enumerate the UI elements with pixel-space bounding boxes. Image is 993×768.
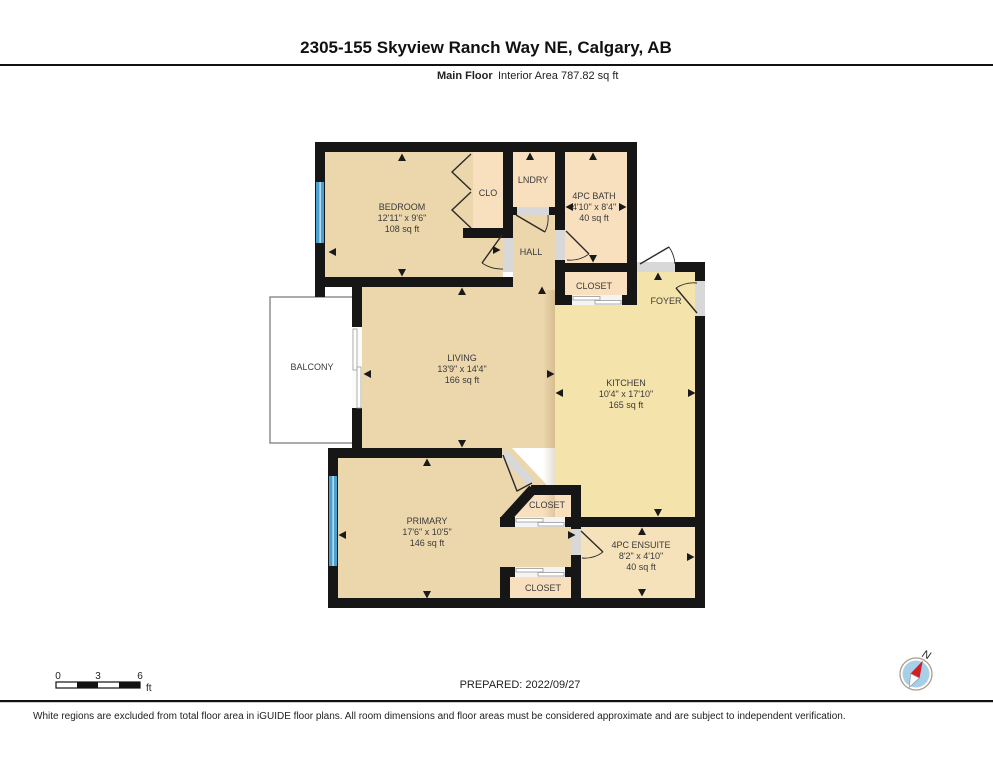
floorplan-page: 2305-155 Skyview Ranch Way NE, Calgary, … (0, 0, 993, 768)
scale-bar: 0 3 6 ft (55, 671, 152, 694)
floorplan-canvas: 2305-155 Skyview Ranch Way NE, Calgary, … (0, 0, 993, 768)
label-kitchen-name: KITCHEN (606, 378, 646, 388)
scale-unit: ft (146, 683, 152, 694)
label-ensuite-name: 4PC ENSUITE (611, 540, 670, 550)
scale-tick-0: 0 (55, 671, 61, 682)
label-foyer: FOYER (650, 296, 682, 306)
header-divider (0, 64, 993, 66)
label-primary-dims: 17'6" x 10'5" (402, 527, 451, 537)
label-hall: HALL (520, 247, 543, 257)
interior-area-label: Interior Area 787.82 sq ft (498, 70, 618, 82)
scale-tick-3: 3 (95, 671, 101, 682)
label-closet-bot: CLOSET (525, 583, 562, 593)
label-kitchen-dims: 10'4" x 17'10" (599, 389, 653, 399)
label-bath-name: 4PC BATH (572, 191, 615, 201)
scale-tick-6: 6 (137, 671, 143, 682)
label-clo: CLO (479, 188, 498, 198)
label-bedroom-area: 108 sq ft (385, 224, 420, 234)
label-kitchen-area: 165 sq ft (609, 400, 644, 410)
label-lndry: LNDRY (518, 175, 548, 185)
prepared-date: PREPARED: 2022/09/27 (460, 679, 581, 691)
label-primary-name: PRIMARY (407, 516, 448, 526)
label-balcony: BALCONY (290, 362, 333, 372)
floor-label: Main Floor (437, 70, 493, 82)
label-closet-top: CLOSET (576, 281, 613, 291)
label-living-name: LIVING (447, 353, 477, 363)
label-living-area: 166 sq ft (445, 375, 480, 385)
compass-icon: N (900, 648, 932, 690)
page-title: 2305-155 Skyview Ranch Way NE, Calgary, … (300, 38, 672, 57)
footer-divider (0, 700, 993, 702)
label-primary-area: 146 sq ft (410, 538, 445, 548)
label-bath-dims: 4'10" x 8'4" (572, 202, 616, 212)
label-ensuite-area: 40 sq ft (626, 562, 656, 572)
label-bedroom-dims: 12'11" x 9'6" (378, 213, 427, 223)
label-closet-mid: CLOSET (529, 500, 566, 510)
label-bedroom-name: BEDROOM (379, 202, 426, 212)
label-living-dims: 13'9" x 14'4" (437, 364, 486, 374)
label-ensuite-dims: 8'2" x 4'10" (619, 551, 663, 561)
label-bath-area: 40 sq ft (579, 213, 609, 223)
disclaimer-text: White regions are excluded from total fl… (33, 711, 846, 722)
